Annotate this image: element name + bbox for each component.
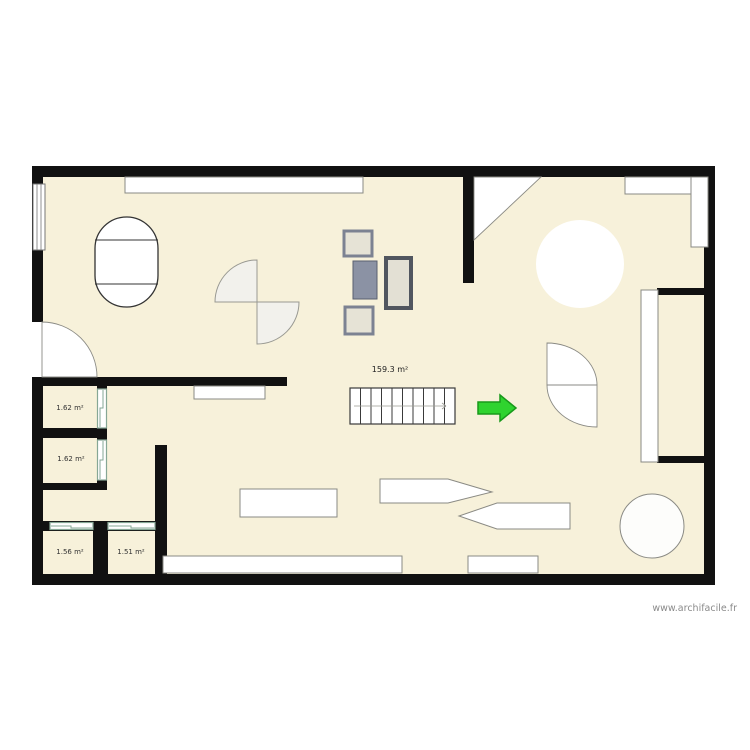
wall-right-room-top	[657, 288, 715, 295]
window-left-frame	[33, 184, 45, 250]
window-left[interactable]	[33, 184, 45, 250]
wall-entrance	[463, 177, 474, 283]
round-table-large[interactable]	[536, 220, 624, 308]
sliding-door-room1[interactable]	[98, 389, 107, 428]
room4-label: 1.51 m²	[117, 548, 145, 556]
floor-plan-canvas: 159.3 m² 1.62 m² 1.62 m² 1.56 m² 1.51 m²…	[0, 0, 750, 750]
room2-label: 1.62 m²	[57, 455, 85, 463]
staircase[interactable]	[350, 388, 455, 424]
watermark-text: www.archifacile.fr	[652, 603, 737, 614]
coffee-table[interactable]	[353, 261, 377, 299]
wall-mid-horizontal	[42, 377, 287, 386]
wall-room2-bottom	[42, 483, 107, 490]
chair-bottom[interactable]	[345, 307, 373, 334]
sliding-door-room3[interactable]	[50, 523, 93, 530]
wall-between-room3-room4	[93, 521, 108, 585]
sliding-door-room2[interactable]	[98, 440, 107, 480]
oval-table[interactable]	[95, 217, 158, 307]
sliding-door-room4[interactable]	[108, 523, 155, 530]
wall-outer-bottom	[32, 574, 715, 585]
sliding-panel-right[interactable]	[641, 290, 658, 462]
counter-bottom-long[interactable]	[163, 556, 402, 573]
wall-outer-top	[32, 166, 715, 177]
counter-topright-horizontal[interactable]	[625, 177, 693, 194]
counter-bottom-short[interactable]	[468, 556, 538, 573]
oval-table-body	[95, 217, 158, 307]
table-rect-bottom-left[interactable]	[240, 489, 337, 517]
counter-top-wall[interactable]	[125, 177, 363, 193]
counter-topright-vertical[interactable]	[691, 177, 708, 247]
main-area-label: 159.3 m²	[372, 365, 408, 374]
room3-label: 1.56 m²	[56, 548, 84, 556]
wall-between-room1-room2	[42, 428, 107, 438]
chair-top[interactable]	[344, 231, 372, 256]
round-table-small[interactable]	[620, 494, 684, 558]
armchair-right[interactable]	[386, 258, 411, 308]
shelf-mid-left[interactable]	[194, 386, 265, 399]
room1-label: 1.62 m²	[56, 404, 84, 412]
wall-right-room-bottom	[657, 456, 715, 463]
